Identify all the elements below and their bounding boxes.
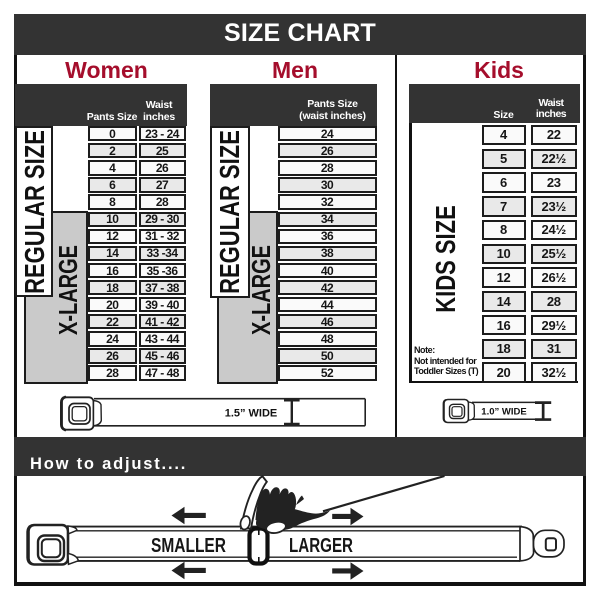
svg-text:SMALLER: SMALLER bbox=[151, 535, 226, 557]
svg-text:1.0” WIDE: 1.0” WIDE bbox=[481, 407, 526, 418]
svg-text:1.5” WIDE: 1.5” WIDE bbox=[225, 408, 278, 420]
svg-text:LARGER: LARGER bbox=[289, 535, 353, 557]
